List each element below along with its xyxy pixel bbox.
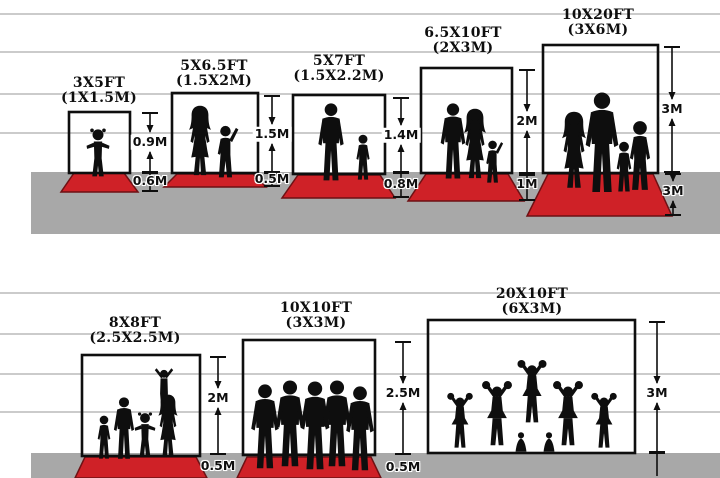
kid_armup-silhouette bbox=[218, 126, 239, 177]
arrow-down-icon bbox=[147, 125, 154, 133]
silhouette-group-6-5x10ft bbox=[441, 103, 503, 182]
arrow-down-icon bbox=[400, 376, 407, 384]
red-carpet-6-5x10ft bbox=[408, 174, 524, 201]
red-carpet-5x6-5ft bbox=[164, 174, 266, 187]
man-silhouette bbox=[276, 380, 304, 466]
man-silhouette bbox=[441, 103, 466, 178]
silhouette-group-3x5ft bbox=[87, 129, 110, 177]
arrow-up-icon bbox=[669, 118, 676, 126]
backdrop-frame-6-5x10ft bbox=[421, 68, 512, 173]
cheer-silhouette bbox=[553, 381, 583, 445]
silhouette-group-5x7ft bbox=[318, 103, 369, 180]
arrow-up-icon bbox=[400, 402, 407, 410]
man-silhouette bbox=[114, 397, 134, 458]
arrow-up-icon bbox=[398, 144, 405, 152]
arrow-down-icon bbox=[670, 174, 677, 182]
woman-silhouette bbox=[189, 106, 211, 175]
diagram-canvas bbox=[0, 0, 720, 478]
arrow-up-icon bbox=[215, 407, 222, 415]
backdrop-frame-8x8ft bbox=[82, 355, 200, 456]
arrow-down-icon bbox=[524, 104, 531, 112]
cheer-silhouette bbox=[517, 360, 546, 422]
cheer-silhouette bbox=[482, 381, 512, 445]
arrow-down-icon bbox=[215, 381, 222, 389]
crouch-silhouette bbox=[516, 432, 527, 451]
arrow-up-icon bbox=[147, 151, 154, 159]
silhouette-group-5x6-5ft bbox=[189, 106, 238, 178]
red-carpet-8x8ft bbox=[75, 457, 207, 478]
cheer-silhouette bbox=[591, 393, 617, 448]
silhouette-group-20x10ft bbox=[447, 360, 617, 452]
woman-silhouette bbox=[464, 109, 486, 178]
man-silhouette bbox=[323, 380, 351, 466]
toddler-silhouette bbox=[87, 129, 110, 177]
arrow-down-icon bbox=[654, 376, 661, 384]
man-silhouette bbox=[318, 103, 343, 180]
arrow-up-icon bbox=[670, 200, 677, 208]
arrow-up-icon bbox=[524, 130, 531, 138]
arrow-up-icon bbox=[654, 402, 661, 410]
red-carpet-5x7ft bbox=[282, 175, 395, 198]
red-carpets-layer bbox=[61, 173, 672, 478]
arrow-up-icon bbox=[269, 143, 276, 151]
arrow-down-icon bbox=[669, 92, 676, 100]
cheer-silhouette bbox=[447, 393, 473, 448]
arrow-down-icon bbox=[398, 118, 405, 126]
size-comparison-diagram: 0.9M0.6M3X5FT(1X1.5M)1.5M0.5M5X6.5FT(1.5… bbox=[0, 0, 720, 478]
backdrop-frame-5x6-5ft bbox=[172, 93, 258, 173]
crouch-silhouette bbox=[544, 432, 555, 451]
boy-silhouette bbox=[98, 416, 111, 459]
silhouette-group-10x10ft bbox=[251, 380, 374, 470]
silhouette-group-8x8ft bbox=[98, 368, 178, 458]
arrow-down-icon bbox=[269, 117, 276, 125]
toddler-silhouette bbox=[135, 412, 156, 455]
silhouette-group-10x20ft bbox=[562, 93, 650, 192]
